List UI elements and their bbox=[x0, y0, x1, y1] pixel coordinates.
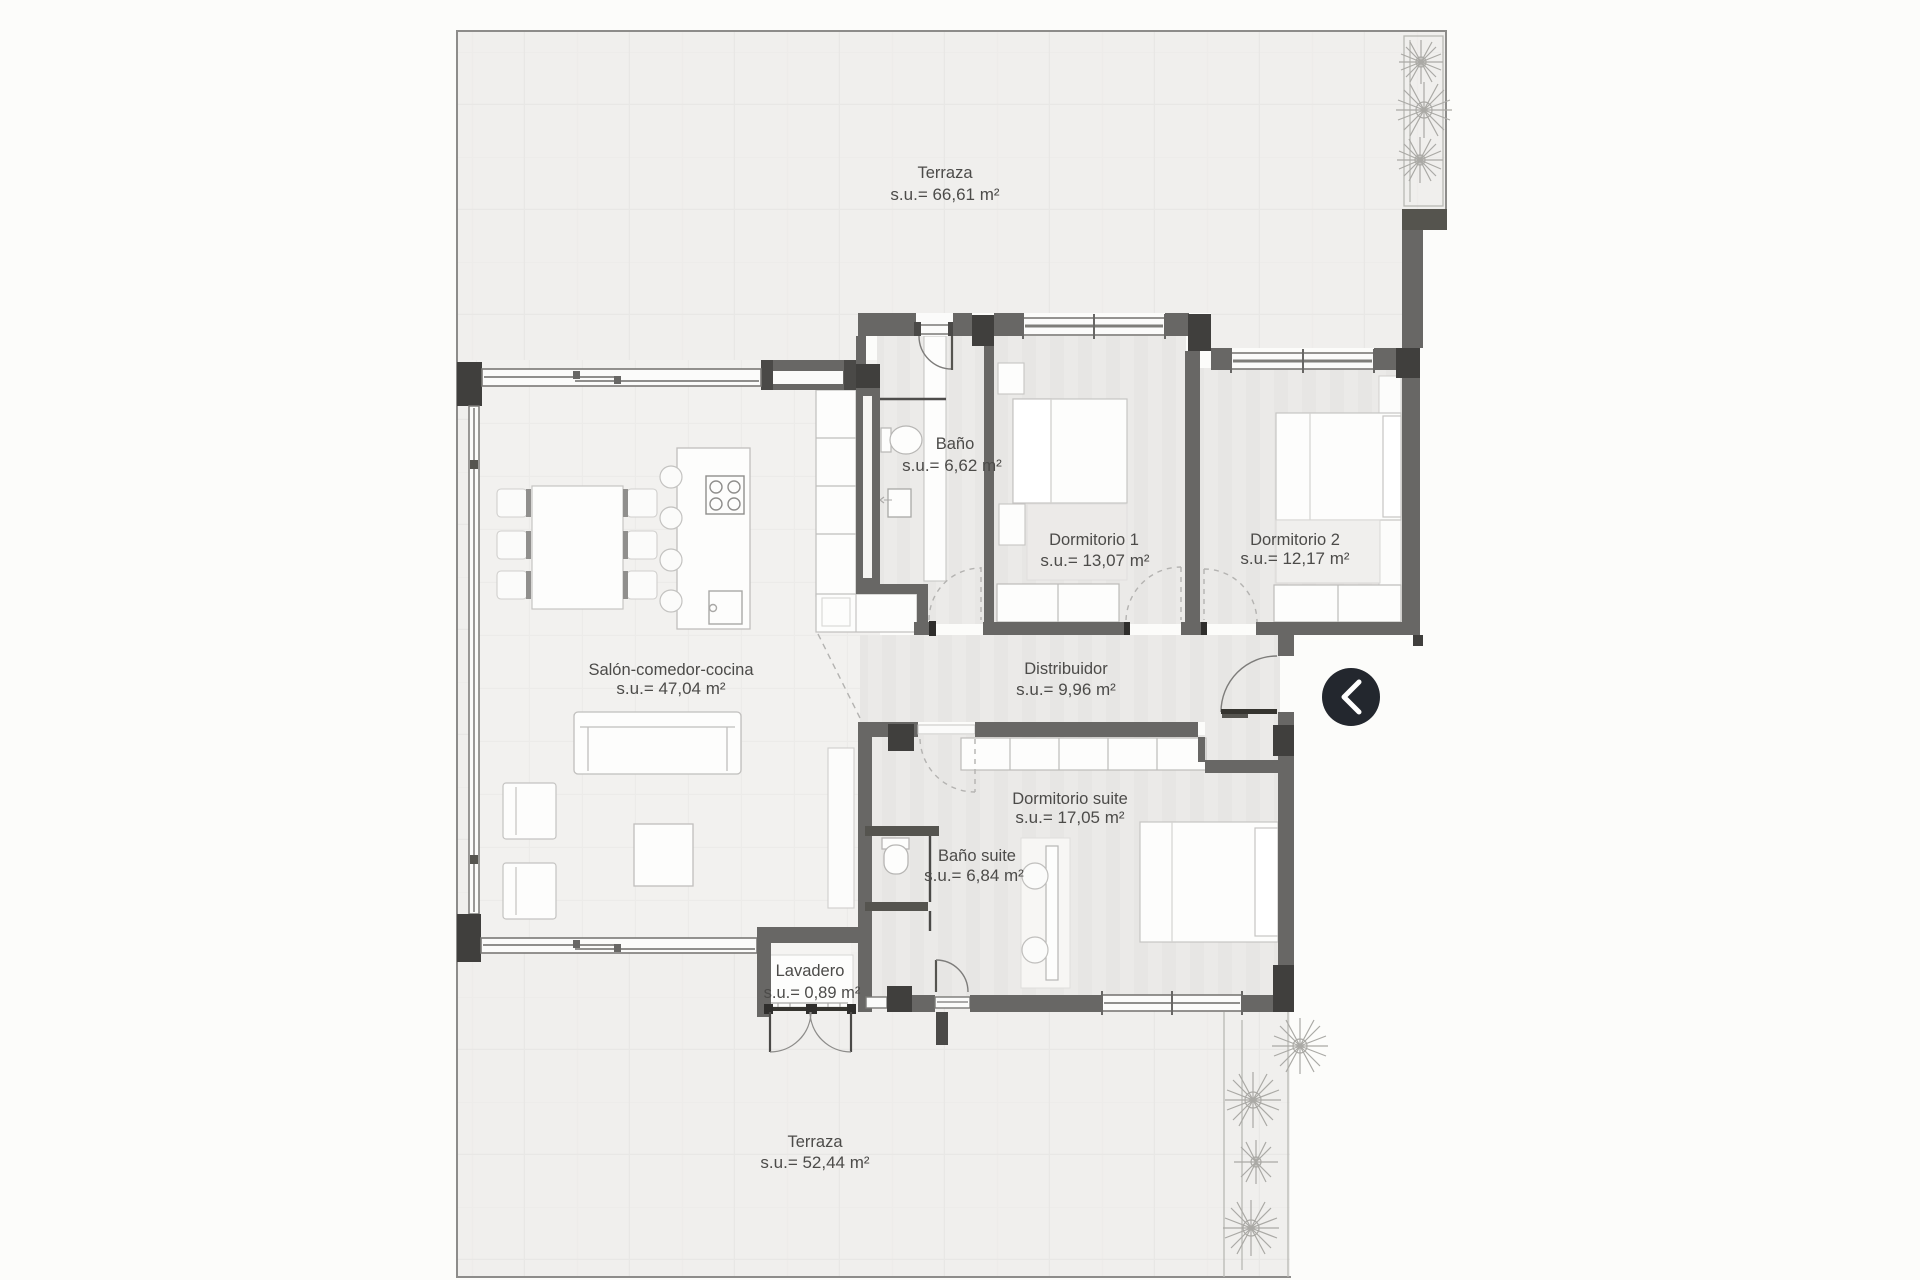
svg-text:Dormitorio 2: Dormitorio 2 bbox=[1250, 531, 1340, 549]
svg-text:Baño suite: Baño suite bbox=[938, 847, 1016, 865]
svg-text:Dormitorio 1: Dormitorio 1 bbox=[1049, 531, 1139, 549]
svg-text:Lavadero: Lavadero bbox=[776, 962, 845, 980]
svg-text:Salón-comedor-cocina: Salón-comedor-cocina bbox=[588, 661, 754, 679]
svg-text:s.u.= 17,05 m²: s.u.= 17,05 m² bbox=[1015, 808, 1124, 827]
svg-text:s.u.= 66,61 m²: s.u.= 66,61 m² bbox=[890, 185, 999, 204]
svg-text:Dormitorio suite: Dormitorio suite bbox=[1012, 790, 1128, 808]
svg-text:Terraza: Terraza bbox=[787, 1133, 843, 1151]
svg-text:Distribuidor: Distribuidor bbox=[1024, 660, 1108, 678]
svg-text:s.u.= 12,17 m²: s.u.= 12,17 m² bbox=[1240, 549, 1349, 568]
svg-text:s.u.= 6,62 m²: s.u.= 6,62 m² bbox=[902, 456, 1002, 475]
svg-text:Terraza: Terraza bbox=[917, 164, 973, 182]
svg-text:s.u.= 52,44 m²: s.u.= 52,44 m² bbox=[760, 1153, 869, 1172]
svg-text:s.u.= 6,84 m²: s.u.= 6,84 m² bbox=[924, 866, 1024, 885]
svg-text:s.u.= 47,04 m²: s.u.= 47,04 m² bbox=[616, 679, 725, 698]
svg-text:s.u.= 0,89 m²: s.u.= 0,89 m² bbox=[764, 984, 861, 1002]
svg-text:Baño: Baño bbox=[936, 435, 975, 453]
svg-text:s.u.= 13,07 m²: s.u.= 13,07 m² bbox=[1040, 551, 1149, 570]
svg-text:s.u.= 9,96 m²: s.u.= 9,96 m² bbox=[1016, 680, 1116, 699]
